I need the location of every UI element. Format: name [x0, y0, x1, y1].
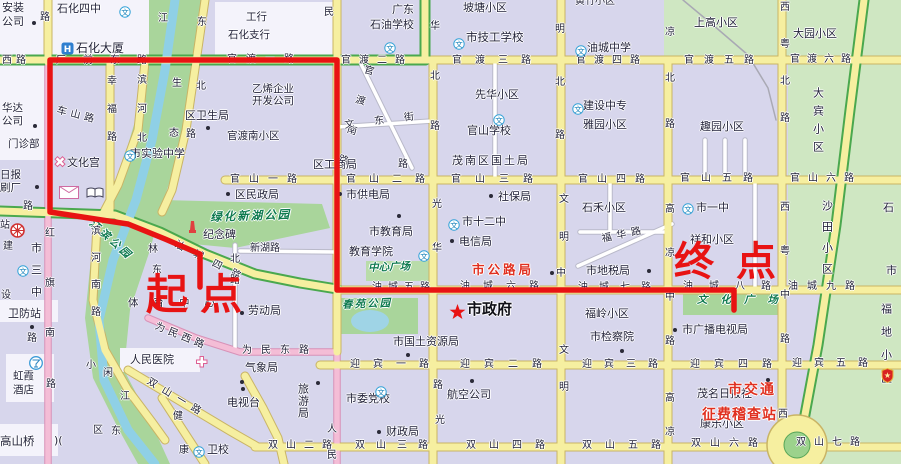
route-start-label: 起点 [146, 274, 254, 316]
route-overlay [0, 0, 901, 464]
route-end-label: 终点 [674, 242, 798, 282]
city-map[interactable]: 起点 终点 安装公司路石化四中石化大厦工行石化支行西路厂前东路官渡一路官渡二路官… [0, 0, 901, 464]
